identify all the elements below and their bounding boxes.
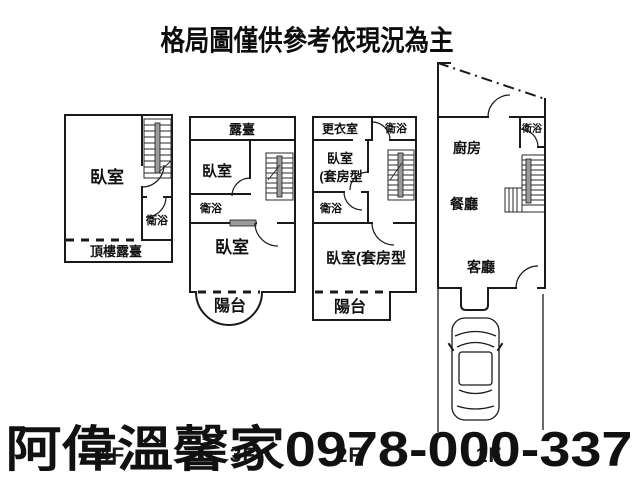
floor-plan-drawing: 格局圖僅供參考依現況為主 bbox=[0, 0, 640, 480]
room-label-balcony-2f: 陽台 bbox=[334, 297, 366, 316]
stairs-icon-3f bbox=[266, 153, 293, 200]
room-label-balcony-3f: 陽台 bbox=[214, 296, 246, 315]
room-label-closet-2f: 更衣室 bbox=[322, 121, 358, 136]
walls-2f bbox=[313, 117, 416, 320]
room-label-living-1f: 客廳 bbox=[466, 259, 495, 275]
room-label-bathroom-1f: 衛浴 bbox=[521, 122, 543, 135]
room-label-bathroom-4f: 衛浴 bbox=[145, 213, 169, 227]
floor-plan-image: 格局圖僅供參考依現況為主 bbox=[0, 0, 640, 480]
room-label-bathroom-3f: 衛浴 bbox=[199, 201, 223, 215]
entry-porch bbox=[461, 288, 488, 310]
floor-plan-3f: 露臺 臥室 衛浴 臥室 陽台 bbox=[190, 117, 295, 325]
floor-plan-1f: 衛浴 廚房 餐廳 客廳 bbox=[438, 63, 545, 432]
room-label-suite-main-2f: 臥室(套房型 bbox=[326, 249, 406, 267]
floor-plan-4f: 臥室 衛浴 頂樓露臺 bbox=[65, 115, 172, 262]
room-label-dining-1f: 餐廳 bbox=[449, 196, 478, 212]
room-label-kitchen-1f: 廚房 bbox=[453, 140, 481, 156]
room-label-suite-line2-2f: (套房型 bbox=[319, 169, 362, 184]
room-label-suite-line1-2f: 臥室 bbox=[327, 151, 353, 166]
hatched-wall-segment bbox=[230, 220, 256, 226]
room-label-roof-terrace-4f: 頂樓露臺 bbox=[90, 244, 142, 259]
lot-boundary-line bbox=[438, 63, 545, 99]
room-label-bedroom-lower-3f: 臥室 bbox=[215, 237, 249, 257]
room-label-terrace-3f: 露臺 bbox=[229, 122, 255, 137]
room-label-bathroom-top-2f: 衛浴 bbox=[384, 121, 408, 135]
room-label-bedroom-upper-3f: 臥室 bbox=[202, 162, 232, 180]
page-title: 格局圖僅供參考依現況為主 bbox=[161, 24, 454, 56]
stairs-icon-1f bbox=[505, 155, 545, 212]
stairs-icon-2f bbox=[388, 150, 414, 200]
stairs-icon-4f bbox=[144, 119, 171, 178]
floor-plan-2f: 更衣室 衛浴 臥室 (套房型 衛浴 臥室(套房型 陽台 bbox=[313, 117, 416, 320]
walls-3f bbox=[190, 117, 295, 325]
watermark-text: 阿偉溫馨家0978-000-337 bbox=[6, 423, 633, 477]
room-label-bedroom-4f: 臥室 bbox=[90, 167, 124, 187]
room-label-bathroom-mid-2f: 衛浴 bbox=[319, 201, 343, 215]
car-icon bbox=[449, 318, 502, 420]
